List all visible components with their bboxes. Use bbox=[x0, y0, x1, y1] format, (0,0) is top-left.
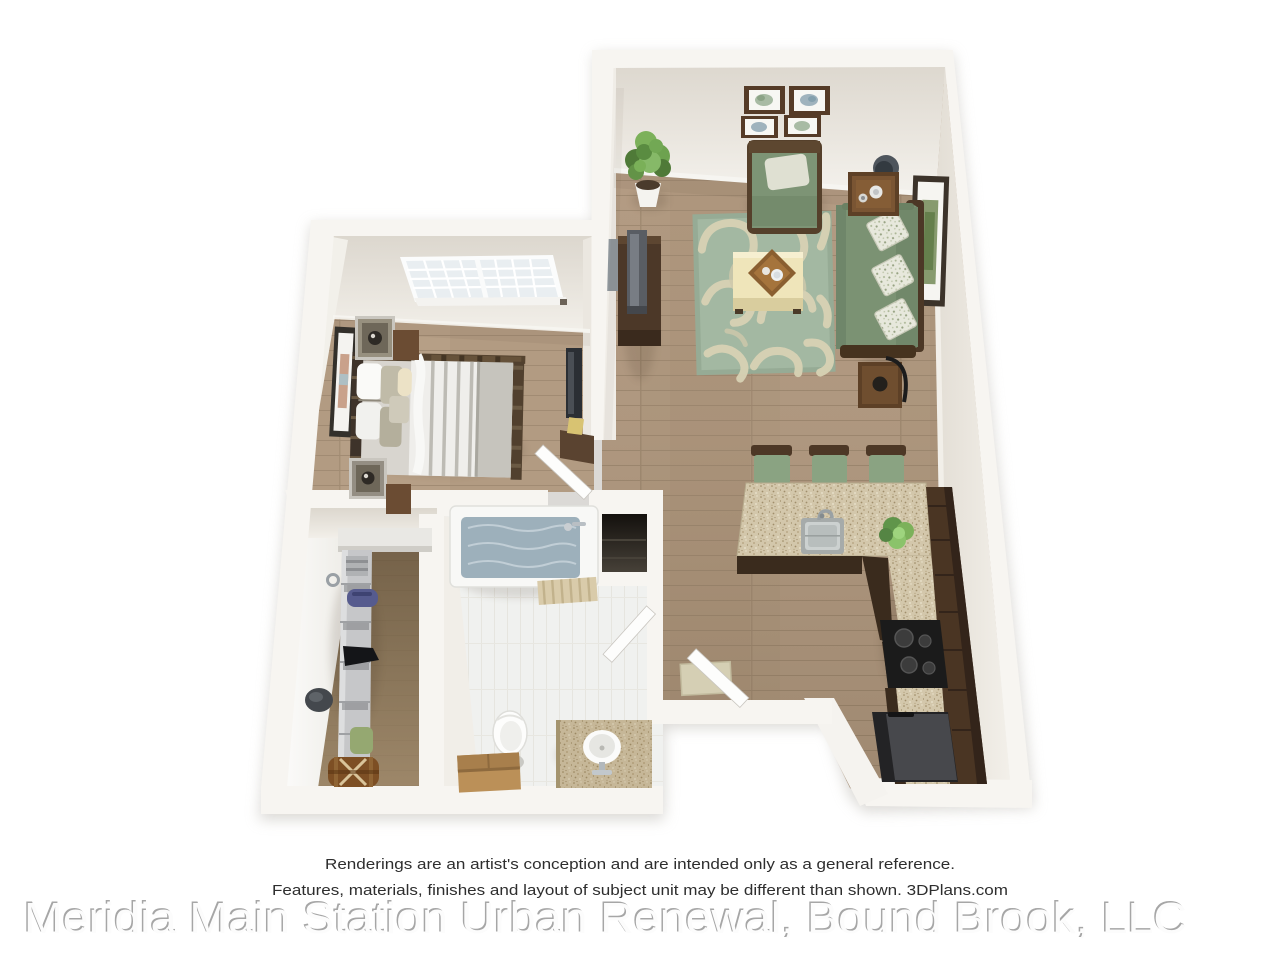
svg-text:Renderings are an artist's con: Renderings are an artist's conception an… bbox=[325, 856, 955, 873]
svg-text:Meridia Main Station Urban Ren: Meridia Main Station Urban Renewal, Boun… bbox=[24, 894, 1187, 943]
